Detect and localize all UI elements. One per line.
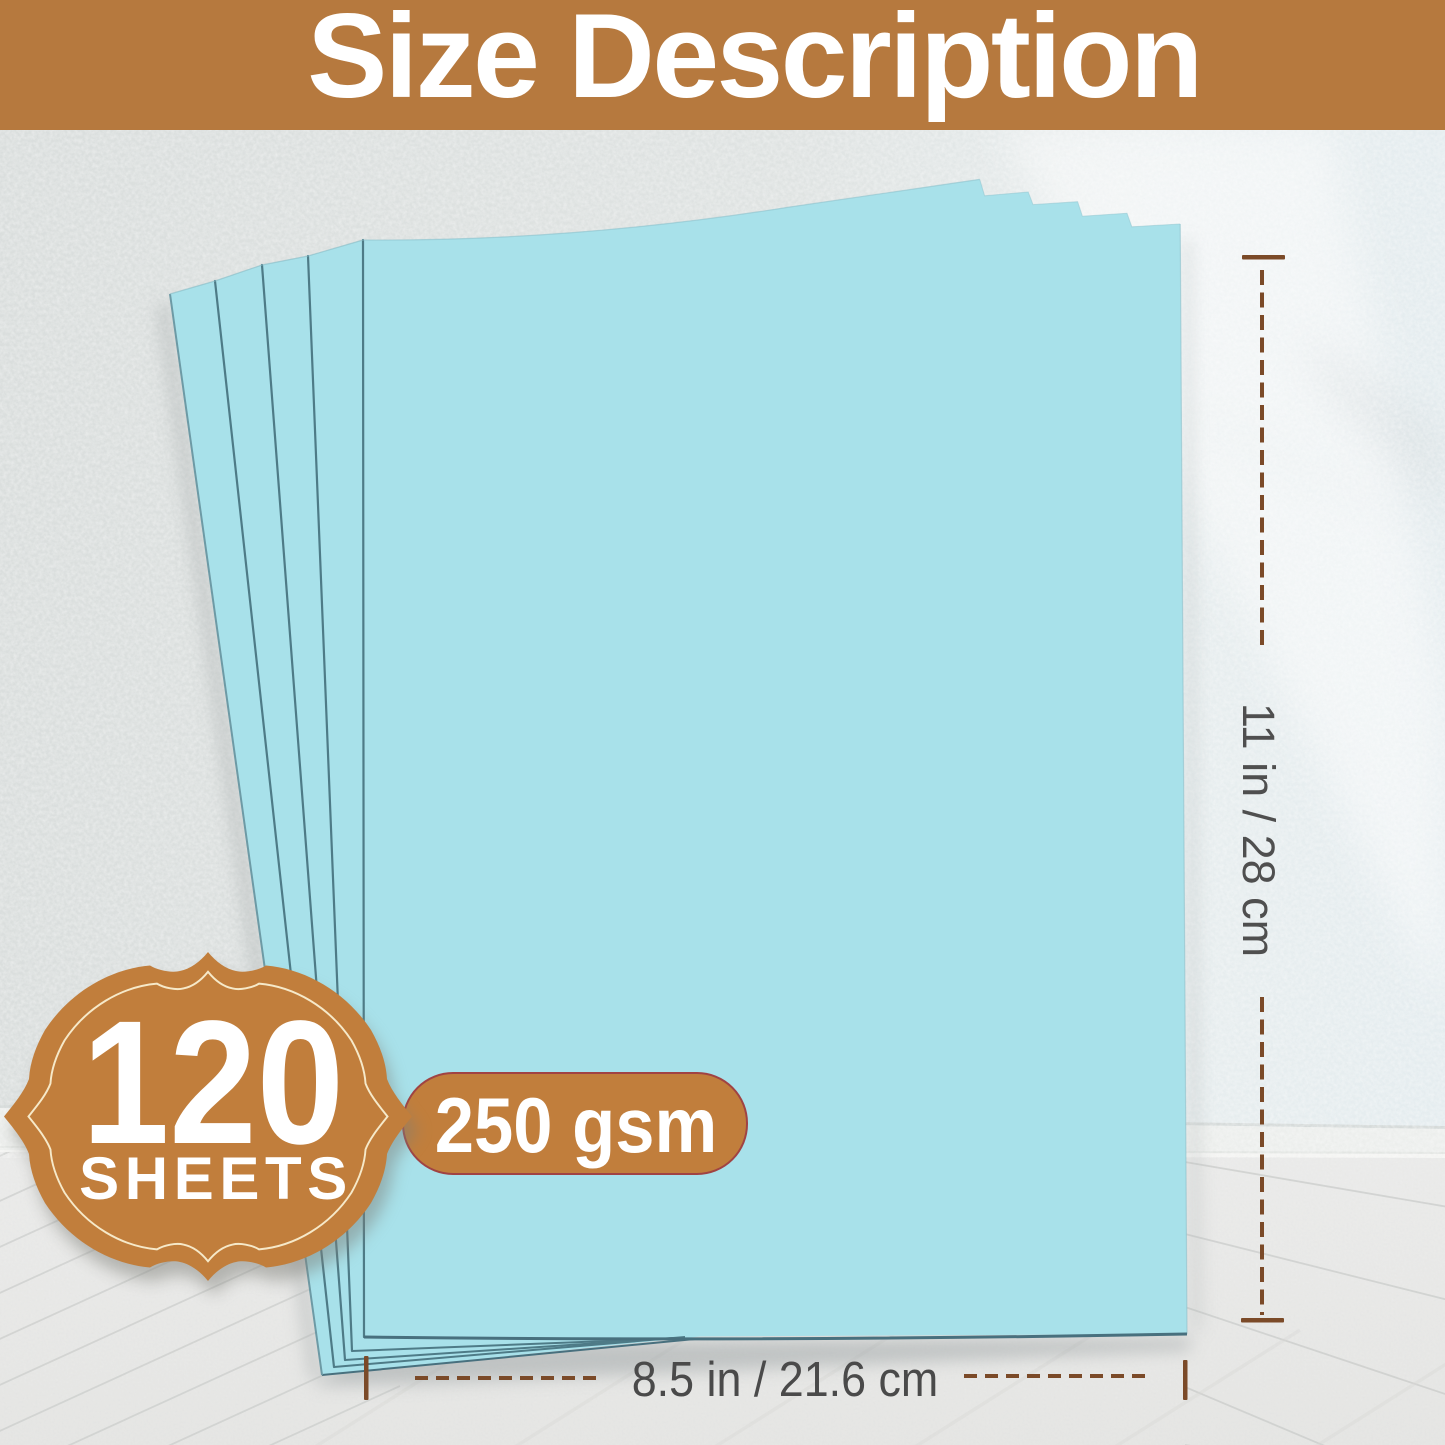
svg-text:11 in / 28 cm: 11 in / 28 cm bbox=[1233, 703, 1284, 957]
svg-text:8.5 in / 21.6 cm: 8.5 in / 21.6 cm bbox=[632, 1351, 938, 1406]
svg-text:SHEETS: SHEETS bbox=[79, 1145, 353, 1212]
svg-text:Size Description: Size Description bbox=[307, 0, 1201, 123]
svg-text:250 gsm: 250 gsm bbox=[435, 1082, 717, 1169]
